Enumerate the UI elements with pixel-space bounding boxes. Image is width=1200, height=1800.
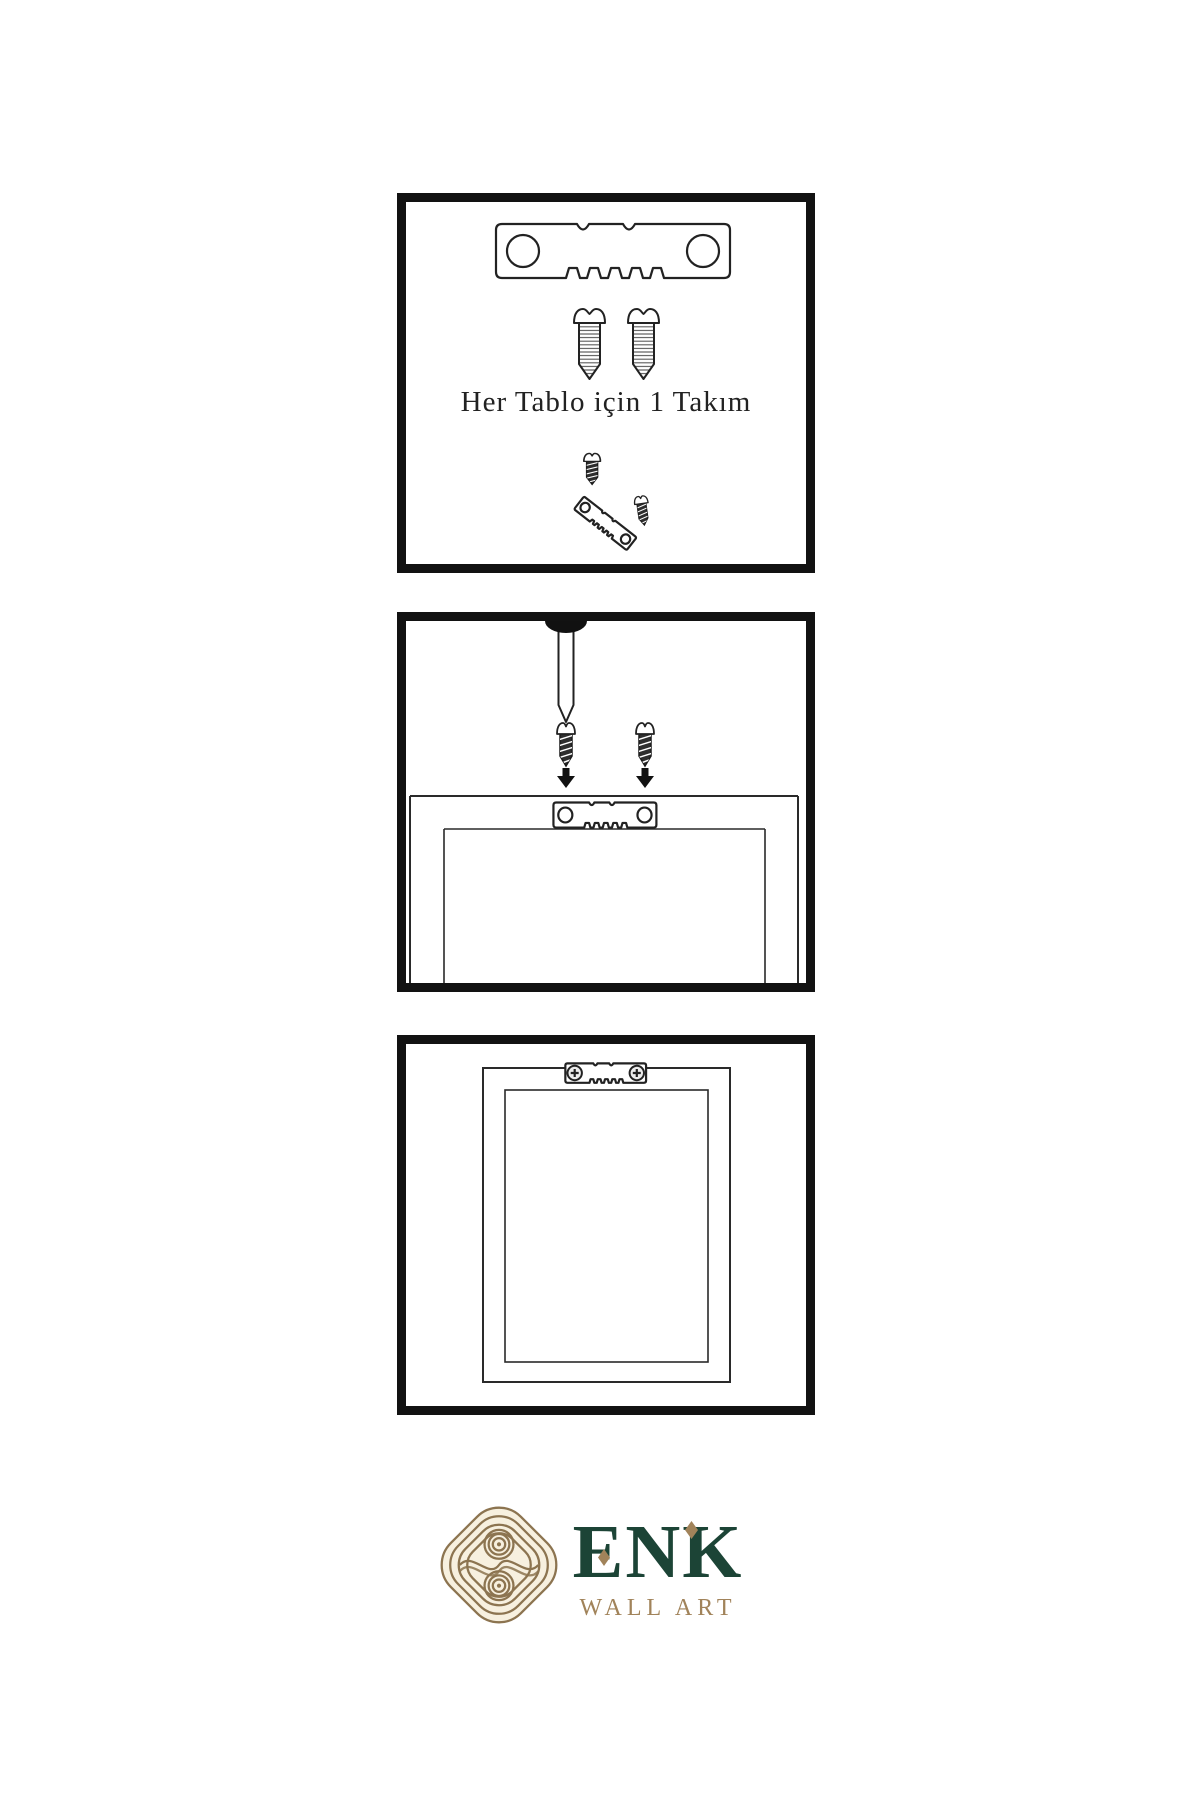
dark-screw-icon [634, 495, 651, 526]
instruction-sheet: Her Tablo için 1 Takım [0, 0, 1200, 1800]
kit-caption: Her Tablo için 1 Takım [406, 386, 806, 419]
sawtooth-hanger-icon [553, 802, 656, 827]
step-2-panel [397, 612, 815, 992]
brand-logo: ENK WALL ART [430, 1497, 750, 1647]
sawtooth-hanger-icon [496, 224, 730, 278]
step-2-art [406, 621, 806, 983]
dark-screw-icon [636, 723, 654, 766]
screw-icon [574, 309, 605, 379]
step-3-panel [397, 1035, 815, 1415]
logo-knot-icon [437, 1503, 561, 1627]
brand-subtitle: WALL ART [570, 1595, 746, 1621]
step-1-art [406, 202, 806, 564]
tilted-sawtooth-hanger-icon [574, 496, 637, 550]
dark-screw-icon [584, 453, 601, 484]
logo-text: ENK WALL ART [570, 1511, 746, 1621]
arrow-down-icon [636, 768, 654, 788]
screw-icon [628, 309, 659, 379]
brand-name: ENK [570, 1511, 746, 1593]
wall-nail-icon [545, 621, 587, 722]
step-1-panel: Her Tablo için 1 Takım [397, 193, 815, 573]
step-3-art [406, 1044, 806, 1406]
picture-frame-back [483, 1068, 730, 1382]
arrow-down-icon [557, 768, 575, 788]
crosshead-screw-icon [630, 1066, 644, 1080]
dark-screw-icon [557, 723, 575, 766]
crosshead-screw-icon [568, 1066, 582, 1080]
